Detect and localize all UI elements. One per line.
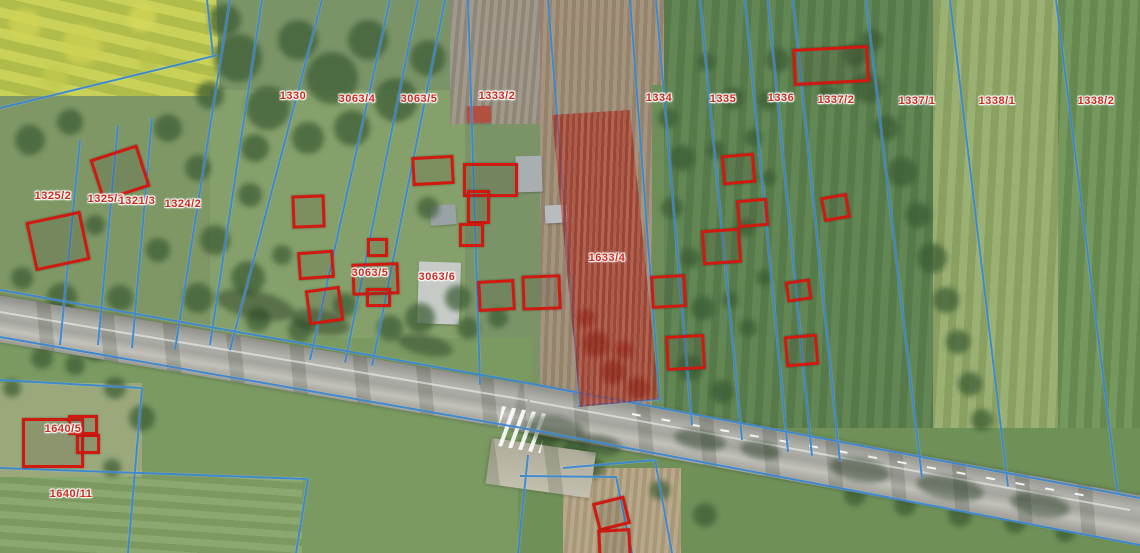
parcel-number-label: 1338/1: [979, 95, 1016, 107]
parcel-number-label: 3063/6: [419, 271, 456, 283]
aerial-map[interactable]: 13303063/43063/51333/21334133513361337/2…: [0, 0, 1140, 553]
parcel-number-label: 1633/4: [589, 252, 626, 264]
parcel-number-label: 3063/5: [352, 267, 389, 279]
parcel-number-label: 1324/2: [165, 198, 202, 210]
parcel-number-label: 1640/5: [45, 423, 82, 435]
parcel-number-label: 1333/2: [479, 90, 516, 102]
parcel-number-label: 1640/11: [50, 488, 93, 500]
parcel-labels-layer: 13303063/43063/51333/21334133513361337/2…: [0, 0, 1140, 553]
parcel-number-label: 1334: [646, 92, 672, 104]
parcel-number-label: 1336: [768, 92, 794, 104]
parcel-number-label: 1321/3: [119, 195, 156, 207]
parcel-number-label: 3063/5: [401, 93, 438, 105]
parcel-number-label: 3063/4: [339, 93, 376, 105]
parcel-number-label: 1325/2: [35, 190, 72, 202]
parcel-number-label: 1330: [280, 90, 306, 102]
parcel-number-label: 1338/2: [1078, 95, 1115, 107]
parcel-number-label: 1337/2: [818, 94, 855, 106]
parcel-number-label: 1337/1: [899, 95, 936, 107]
parcel-number-label: 1335: [710, 93, 736, 105]
